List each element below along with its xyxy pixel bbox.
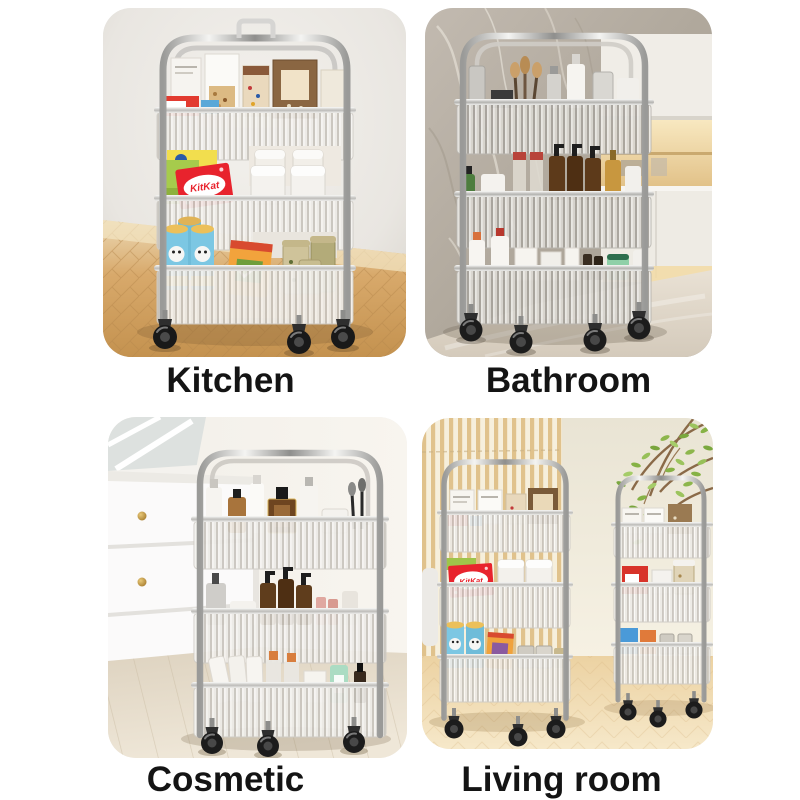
product-collage: KitKat	[0, 0, 800, 800]
caption-living-room: Living room	[416, 761, 707, 800]
bathroom-cart	[454, 36, 654, 356]
sofa-arm	[422, 568, 438, 646]
caption-kitchen: Kitchen	[79, 362, 382, 401]
window-corner	[108, 417, 206, 481]
caption-bathroom: Bathroom	[425, 362, 712, 401]
bathroom-photo	[425, 8, 712, 357]
kitchen-photo: KitKat	[103, 8, 406, 357]
cosmetic-photo	[108, 417, 407, 758]
caption-cosmetic: Cosmetic	[76, 761, 375, 800]
living-room-photo: KitKat	[422, 418, 713, 749]
